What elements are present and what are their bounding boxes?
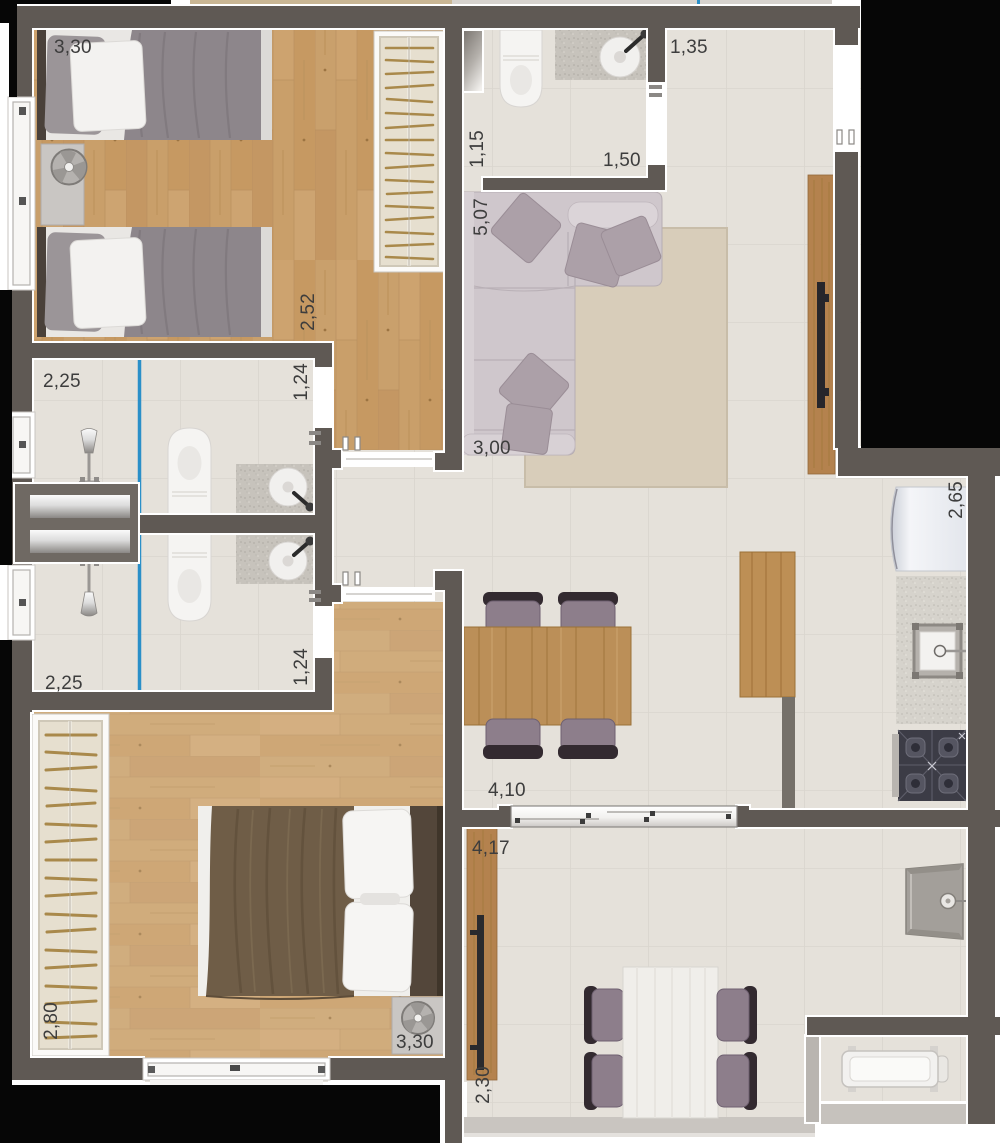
svg-text:1,50: 1,50: [603, 150, 641, 171]
svg-text:2,65: 2,65: [946, 481, 967, 519]
svg-text:3,30: 3,30: [54, 37, 92, 58]
svg-text:4,10: 4,10: [488, 780, 526, 801]
svg-text:1,24: 1,24: [291, 648, 312, 686]
svg-text:4,17: 4,17: [472, 838, 510, 859]
svg-text:1,35: 1,35: [670, 37, 708, 58]
svg-text:2,80: 2,80: [41, 1002, 62, 1040]
svg-text:5,07: 5,07: [471, 198, 492, 236]
svg-text:2,25: 2,25: [43, 371, 81, 392]
svg-text:1,15: 1,15: [467, 130, 488, 168]
svg-text:2,25: 2,25: [45, 673, 83, 694]
svg-text:3,30: 3,30: [396, 1032, 434, 1053]
svg-text:1,24: 1,24: [291, 363, 312, 401]
svg-text:3,00: 3,00: [473, 438, 511, 459]
svg-text:2,52: 2,52: [298, 293, 319, 331]
svg-text:2,30: 2,30: [473, 1066, 494, 1104]
